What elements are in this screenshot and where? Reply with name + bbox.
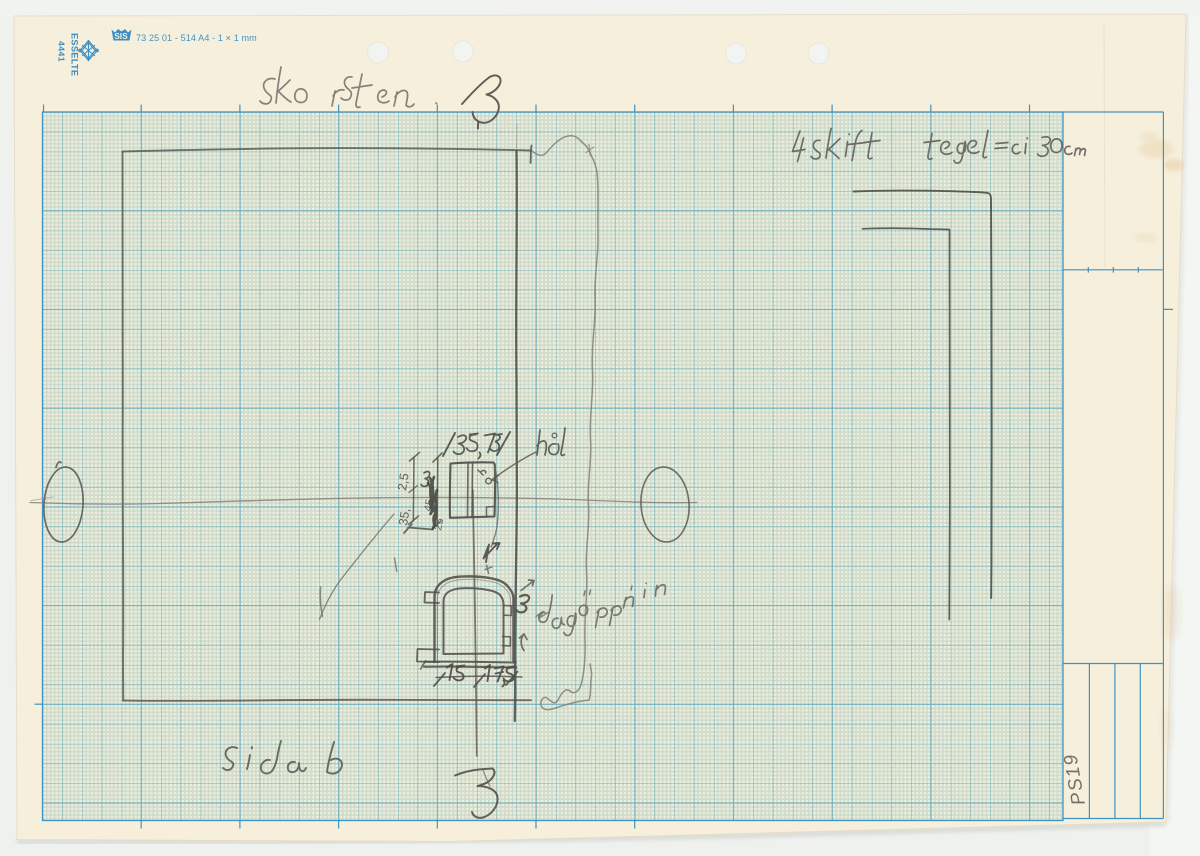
svg-text:2,5: 2,5 bbox=[395, 472, 412, 491]
svg-text:SIS: SIS bbox=[114, 31, 128, 41]
svg-text:ESSELTE: ESSELTE bbox=[70, 33, 80, 76]
svg-text:73 25 01 - 514 A4 - 1 × 1 mm: 73 25 01 - 514 A4 - 1 × 1 mm bbox=[136, 33, 257, 43]
svg-text:35,: 35, bbox=[396, 507, 413, 526]
svg-text:4441: 4441 bbox=[57, 41, 67, 62]
